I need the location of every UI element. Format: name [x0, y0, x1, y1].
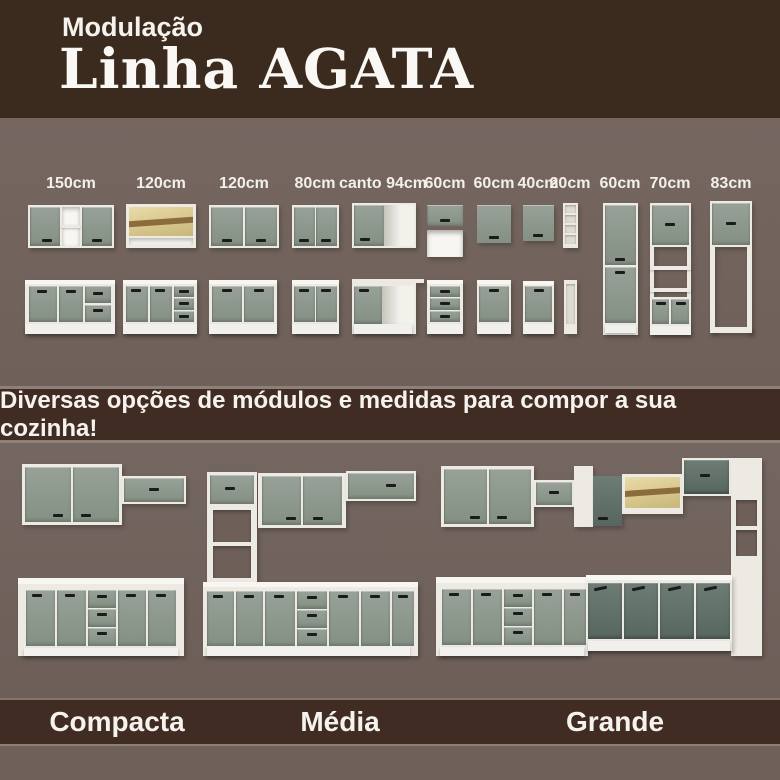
- toe-kick: [354, 324, 412, 334]
- toe-kick: [292, 324, 339, 334]
- tower-rail: [710, 247, 715, 333]
- drawer-handle: [307, 614, 317, 617]
- toe-kick: [588, 641, 730, 651]
- door-handle: [533, 234, 543, 237]
- toe-kick: [477, 324, 511, 334]
- corner-side-panel: [384, 205, 414, 246]
- door-handle: [470, 516, 480, 519]
- countertop: [18, 578, 184, 584]
- open-niche: [62, 207, 80, 246]
- cabinet-door: [696, 583, 730, 639]
- grande-wall-extension: [534, 480, 574, 507]
- door-handle: [359, 289, 369, 292]
- drawer-handle: [179, 302, 189, 305]
- drawer-handle: [97, 595, 107, 598]
- door-handle: [570, 593, 580, 596]
- footer-strip: [0, 746, 780, 780]
- cabinet-door: [525, 286, 552, 322]
- door-handle: [440, 219, 450, 222]
- cabinet-panel: [129, 238, 193, 245]
- door-handle: [256, 239, 266, 242]
- header-section: Modulação Linha AGATA: [0, 0, 780, 118]
- cabinet-door: [624, 583, 658, 639]
- cabinet-door: [29, 286, 57, 322]
- wall-cabinet-150: [28, 205, 114, 248]
- size-label-band: Compacta Média Grande: [0, 700, 780, 744]
- drawer: [430, 311, 460, 322]
- countertop: [477, 280, 511, 284]
- tower-bottom-rail: [710, 327, 752, 333]
- drawer: [85, 286, 111, 303]
- door-handle: [321, 289, 331, 292]
- cabinet-door: [536, 482, 572, 505]
- drawer-handle: [513, 594, 523, 597]
- countertop: [123, 280, 197, 284]
- cabinet-door: [329, 591, 359, 646]
- cabinet-door: [211, 207, 243, 246]
- open-box-niche: [427, 230, 463, 257]
- tower-70-base: [650, 297, 691, 335]
- compacta-base-cabinet: [18, 578, 184, 656]
- shelf-cell: [565, 225, 576, 233]
- base-cabinet-120-b: [209, 280, 277, 334]
- door-handle: [704, 586, 717, 592]
- countertop: [292, 280, 339, 284]
- kitchen-size-media: Média: [300, 706, 379, 738]
- drawer: [174, 286, 194, 297]
- cabinet-door: [489, 469, 531, 524]
- door-handle: [676, 302, 686, 305]
- drawer-handle: [97, 632, 107, 635]
- cabinet-door: [479, 286, 509, 322]
- grande-wall-cabinet: [441, 466, 534, 527]
- door-handle: [481, 593, 491, 596]
- wall-cabinet-80: [292, 205, 339, 248]
- door-handle: [222, 289, 232, 292]
- drawer-handle: [93, 292, 103, 295]
- door-handle: [299, 289, 309, 292]
- door-handle: [37, 290, 47, 293]
- cabinet-door: [244, 286, 274, 322]
- drawer: [430, 286, 460, 297]
- shelf-cell: [565, 205, 576, 213]
- cabinet-door: [294, 286, 315, 322]
- door-handle: [549, 491, 559, 494]
- door-handle: [274, 595, 284, 598]
- base-cabinet-40: [523, 281, 554, 334]
- toe-kick: [427, 324, 463, 334]
- cabinet-door: [303, 476, 342, 525]
- wall-cabinet-120-glass: [126, 204, 196, 248]
- door-handle: [155, 289, 165, 292]
- cabinet-door: [126, 286, 148, 322]
- wall-cabinet-corner: [352, 203, 416, 248]
- glass-door: [625, 477, 680, 508]
- cabinet-door: [236, 591, 263, 646]
- drawer: [174, 298, 194, 310]
- cabinet-door: [392, 591, 414, 646]
- kitchen-size-compacta: Compacta: [49, 706, 184, 738]
- media-wall-extension: [346, 471, 416, 501]
- door-handle: [668, 586, 681, 592]
- countertop: [427, 280, 463, 284]
- cabinet-door: [124, 478, 184, 502]
- cabinet-door: [316, 207, 337, 246]
- module-label-83cm: 83cm: [661, 175, 780, 193]
- door-handle: [656, 302, 666, 305]
- drawer-handle: [97, 613, 107, 616]
- cabinet-door: [564, 589, 586, 645]
- door-handle: [213, 595, 223, 598]
- countertop: [209, 280, 277, 284]
- cabinet-door: [444, 469, 487, 524]
- cabinet-door: [684, 460, 729, 494]
- door-handle: [386, 484, 396, 487]
- tower-70-top: [650, 203, 691, 247]
- wall-shelf-20: [563, 203, 578, 248]
- countertop: [25, 280, 115, 284]
- open-niche: [213, 510, 251, 542]
- door-handle: [244, 595, 254, 598]
- door-handle: [338, 595, 348, 598]
- cabinet-door: [57, 590, 86, 646]
- door-handle: [81, 514, 91, 517]
- door-handle: [542, 593, 552, 596]
- base-cabinet-150: [25, 280, 115, 334]
- wall-cabinet-60-flap: [427, 205, 463, 226]
- drawer: [504, 589, 532, 607]
- cabinet-door: [316, 286, 337, 322]
- door-handle: [615, 258, 625, 261]
- door-handle: [497, 516, 507, 519]
- door-handle: [489, 236, 499, 239]
- kitchen-size-grande: Grande: [566, 706, 664, 738]
- toe-kick: [123, 324, 197, 334]
- drawer: [297, 610, 327, 628]
- toe-kick: [25, 324, 115, 334]
- cabinet-door: [605, 205, 636, 265]
- door-handle: [149, 488, 159, 491]
- drawer-handle: [513, 612, 523, 615]
- door-handle: [156, 594, 166, 597]
- door-handle: [598, 517, 608, 520]
- kitchens-section: [0, 443, 780, 698]
- cabinet-door: [361, 591, 390, 646]
- door-handle: [131, 289, 141, 292]
- drawer-handle: [513, 631, 523, 634]
- door-handle: [398, 595, 408, 598]
- cabinet-door: [210, 475, 254, 504]
- base-cabinet-80: [292, 280, 339, 334]
- drawer-handle: [307, 633, 317, 636]
- glass-door: [129, 207, 193, 236]
- drawer: [504, 608, 532, 626]
- door-handle: [32, 594, 42, 597]
- cabinet-door: [652, 299, 669, 324]
- toe-kick: [650, 326, 691, 335]
- drawer: [88, 590, 116, 608]
- toe-kick: [24, 648, 178, 656]
- cabinet-door: [59, 286, 83, 322]
- cabinet-door: [588, 583, 622, 639]
- drawer-handle: [440, 315, 450, 318]
- door-handle: [126, 594, 136, 597]
- cabinet-door: [25, 467, 71, 522]
- media-wall-cabinet: [258, 473, 346, 528]
- drawer-handle: [179, 315, 189, 318]
- door-handle: [66, 290, 76, 293]
- door-handle: [313, 517, 323, 520]
- door-handle: [42, 239, 52, 242]
- page-title: Linha AGATA: [59, 36, 474, 101]
- open-niche: [736, 530, 757, 556]
- cabinet-door: [262, 476, 301, 525]
- base-cabinet-corner: [352, 283, 416, 334]
- door-handle: [632, 586, 645, 592]
- cabinet-door: [534, 589, 562, 645]
- tall-pantry-60: [603, 203, 638, 335]
- cabinet-door: [265, 591, 295, 646]
- door-handle: [449, 593, 459, 596]
- door-handle: [594, 586, 607, 592]
- base-filler-20: [564, 280, 577, 334]
- door-handle: [286, 517, 296, 520]
- countertop: [436, 577, 588, 583]
- door-handle: [534, 289, 544, 292]
- drawer-handle: [440, 290, 450, 293]
- cabinet-door: [294, 207, 315, 246]
- drawer: [88, 628, 116, 646]
- door-handle: [700, 474, 710, 477]
- base-cabinet-60-door: [477, 280, 511, 334]
- filler-panel: [574, 466, 593, 527]
- countertop: [523, 281, 554, 285]
- door-handle: [53, 514, 63, 517]
- compacta-wall-cabinet: [22, 464, 122, 525]
- countertop: [203, 582, 418, 587]
- door-handle: [92, 239, 102, 242]
- drawer: [504, 627, 532, 645]
- cabinet-door: [26, 590, 55, 646]
- toe-kick: [440, 647, 584, 656]
- door-handle: [489, 289, 499, 292]
- countertop: [586, 575, 732, 580]
- cabinet-door: [30, 207, 60, 246]
- tower-83-top: [710, 201, 752, 247]
- grande-tower: [731, 458, 762, 656]
- door-handle: [360, 238, 370, 241]
- grande-dark-wall-cabinet: [682, 458, 731, 496]
- door-handle: [615, 271, 625, 274]
- drawer-handle: [307, 596, 317, 599]
- cabinet-door: [712, 203, 750, 245]
- door-handle: [65, 594, 75, 597]
- shelf: [62, 225, 80, 228]
- drawer-handle: [440, 302, 450, 305]
- cabinet-door: [660, 583, 694, 639]
- media-tower-shelves: [207, 507, 257, 582]
- cabinet-door: [442, 589, 471, 645]
- grande-base-left: [436, 577, 588, 656]
- wall-cabinet-60-door: [477, 205, 511, 243]
- cabinet-door: [652, 205, 689, 245]
- corner-side-panel: [382, 286, 414, 324]
- base-cabinet-60-drawers: [427, 280, 463, 334]
- tower-rail: [747, 247, 752, 333]
- shelf-cell: [565, 215, 576, 223]
- wall-cabinet-120: [209, 205, 279, 248]
- door-handle: [665, 223, 675, 226]
- cabinet-door: [207, 591, 234, 646]
- cabinet-door: [148, 590, 176, 646]
- door-handle: [254, 289, 264, 292]
- base-cabinet-120-a: [123, 280, 197, 334]
- toe-kick: [207, 646, 410, 656]
- cabinet-door: [605, 267, 636, 323]
- drawer: [88, 609, 116, 627]
- grande-base-right: [586, 575, 732, 651]
- door-handle: [321, 239, 331, 242]
- shelf-cell: [565, 235, 576, 244]
- door-handle: [726, 222, 736, 225]
- door-handle: [222, 239, 232, 242]
- shelf: [650, 266, 691, 270]
- cabinet-door: [354, 286, 382, 324]
- media-base-cabinet: [203, 582, 418, 656]
- drawer-handle: [93, 309, 103, 312]
- cabinet-door: [348, 473, 414, 499]
- promo-image: Modulação Linha AGATA 150cm 120cm 120cm …: [0, 0, 780, 780]
- media-tower-top: [207, 472, 257, 507]
- grande-dark-wall-door: [593, 476, 622, 526]
- cabinet-door: [150, 286, 172, 322]
- drawer: [174, 311, 194, 322]
- door-handle: [225, 487, 235, 490]
- cabinet-door: [82, 207, 112, 246]
- drawer: [297, 591, 327, 609]
- cabinet-door: [671, 299, 689, 324]
- shelf-cell: [566, 284, 575, 324]
- drawer: [430, 298, 460, 310]
- open-niche: [213, 546, 251, 578]
- door-handle: [299, 239, 309, 242]
- cabinet-door: [212, 286, 242, 322]
- cabinet-door: [118, 590, 146, 646]
- drawer: [85, 305, 111, 322]
- compacta-wall-extension: [122, 476, 186, 504]
- drawer-handle: [179, 290, 189, 293]
- cabinet-door: [354, 205, 384, 246]
- modules-section: 150cm 120cm 120cm 80cm canto 94cm 60cm 6…: [0, 118, 780, 386]
- grande-glass-cabinet: [622, 474, 683, 514]
- toe-kick: [605, 325, 636, 333]
- toe-kick: [523, 324, 554, 334]
- banner-section: Diversas opções de módulos e medidas par…: [0, 389, 780, 440]
- door-handle: [370, 595, 380, 598]
- cabinet-door: [73, 467, 119, 522]
- open-niche: [736, 500, 757, 526]
- drawer: [297, 629, 327, 646]
- toe-kick: [209, 324, 277, 334]
- cabinet-door: [473, 589, 502, 645]
- shelf: [650, 288, 691, 292]
- cabinet-door: [245, 207, 277, 246]
- banner-text: Diversas opções de módulos e medidas par…: [0, 387, 780, 443]
- wall-cabinet-40-door: [523, 205, 554, 241]
